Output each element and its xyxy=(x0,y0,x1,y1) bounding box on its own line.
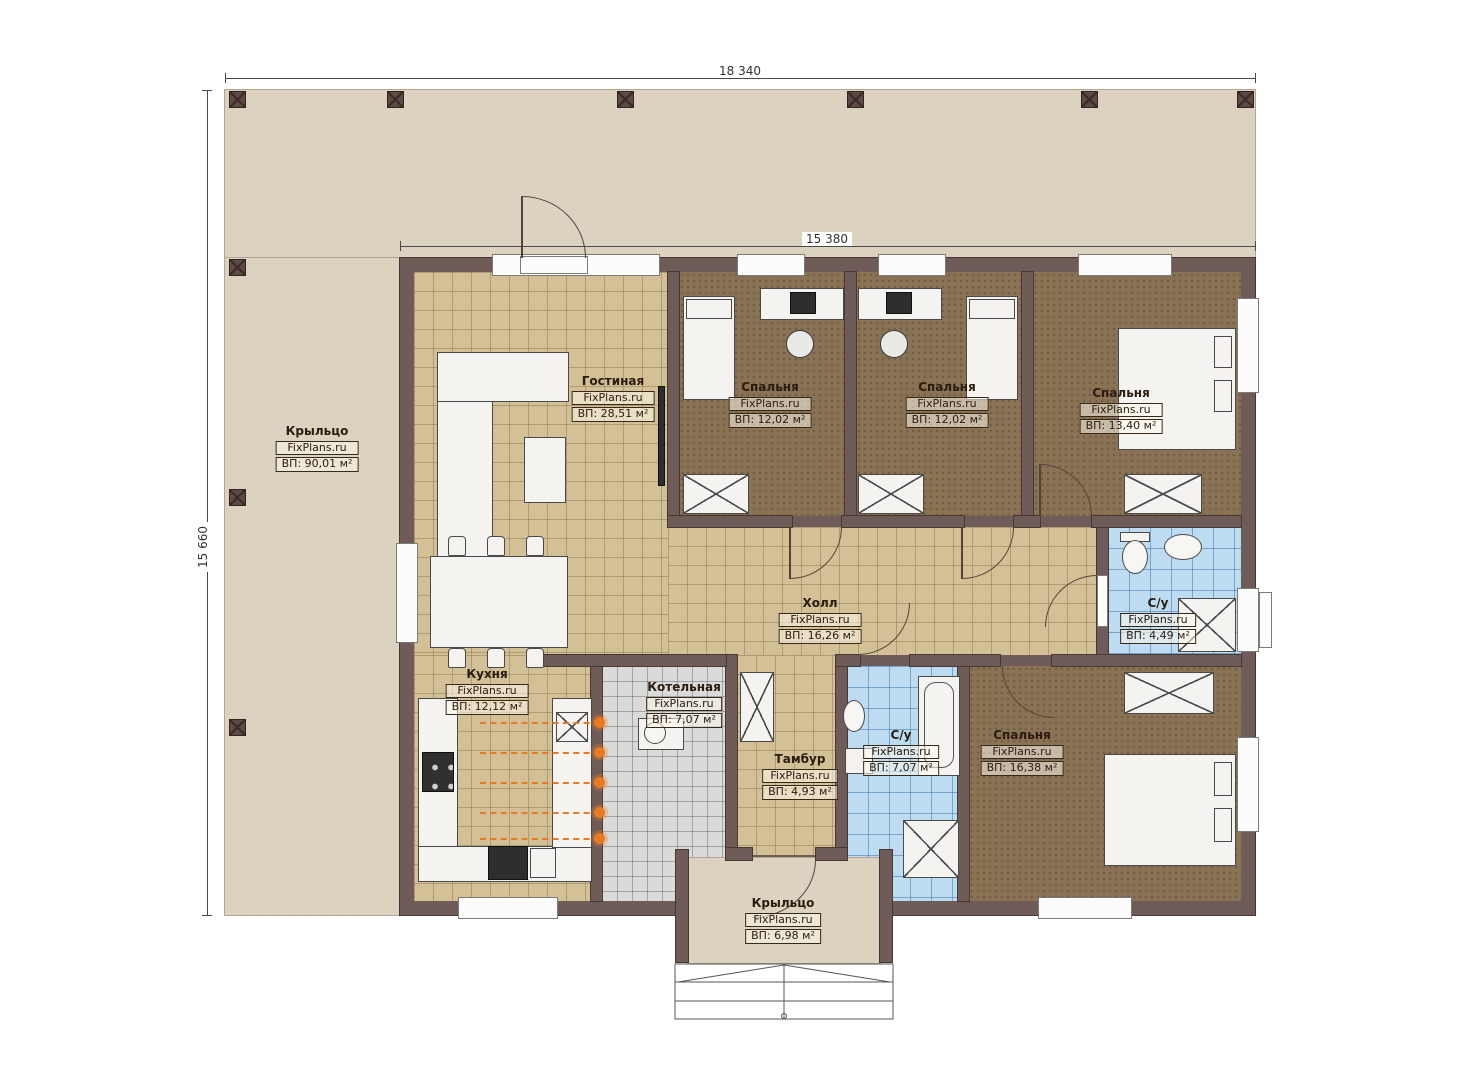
heating-pipe xyxy=(480,812,600,814)
dimension-tick xyxy=(202,915,212,916)
office-chair xyxy=(786,330,814,358)
room-watermark: FixPlans.ru xyxy=(729,397,812,412)
room-watermark: FixPlans.ru xyxy=(276,441,359,456)
porch-column xyxy=(230,92,245,107)
dimension-tick xyxy=(1255,73,1256,83)
room-watermark: FixPlans.ru xyxy=(863,745,939,760)
room-name: Тамбур xyxy=(762,753,838,767)
door-bathroom-top-opening xyxy=(1097,575,1108,627)
room-name: Спальня xyxy=(1080,387,1163,401)
tv xyxy=(658,386,665,486)
heating-pipe xyxy=(480,752,600,754)
room-area: ВП: 28,51 м² xyxy=(572,407,655,422)
porch-column xyxy=(1238,92,1253,107)
door-leaf xyxy=(521,196,523,258)
room-area: ВП: 4,93 м² xyxy=(762,785,838,800)
interior-wall xyxy=(540,655,726,666)
interior-wall xyxy=(1022,272,1033,516)
interior-wall xyxy=(1014,516,1040,527)
room-label-kitchen: Кухня FixPlans.ru ВП: 12,12 м² xyxy=(446,668,529,715)
room-area: ВП: 4,49 м² xyxy=(1120,629,1196,644)
room-watermark: FixPlans.ru xyxy=(906,397,989,412)
room-name: Спальня xyxy=(906,381,989,395)
interior-wall xyxy=(668,272,679,516)
pillow xyxy=(969,299,1015,319)
room-area: ВП: 7,07 м² xyxy=(646,713,722,728)
wardrobe xyxy=(858,474,924,514)
interior-wall xyxy=(842,516,964,527)
dimension-tick xyxy=(400,241,401,251)
door-leaf xyxy=(1039,464,1041,516)
dishwasher xyxy=(530,848,556,878)
wardrobe xyxy=(1124,474,1202,514)
vestibule-south-wall xyxy=(726,848,752,860)
window-bedroom-4 xyxy=(1038,897,1132,919)
sink xyxy=(843,700,865,732)
room-label-bedroom-4: Спальня FixPlans.ru ВП: 16,38 м² xyxy=(981,729,1064,776)
room-name: Котельная xyxy=(646,681,722,695)
room-name: С/у xyxy=(1120,597,1196,611)
door-main-entrance-opening xyxy=(520,256,588,274)
toilet xyxy=(1122,540,1148,574)
room-label-living: Гостиная FixPlans.ru ВП: 28,51 м² xyxy=(572,375,655,422)
interior-wall xyxy=(1052,655,1241,666)
dining-chair xyxy=(448,536,466,556)
laptop xyxy=(886,292,912,314)
room-label-bathroom-bottom: С/у FixPlans.ru ВП: 7,07 м² xyxy=(863,729,939,776)
room-area: ВП: 13,40 м² xyxy=(1080,419,1163,434)
dining-chair xyxy=(526,536,544,556)
pillow xyxy=(686,299,732,319)
wardrobe xyxy=(683,474,749,514)
room-watermark: FixPlans.ru xyxy=(981,745,1064,760)
dimension-line-top xyxy=(225,78,1255,79)
room-name: Крыльцо xyxy=(276,425,359,439)
heating-valve xyxy=(594,833,605,844)
dining-chair xyxy=(487,536,505,556)
dimension-overall-width: 18 340 xyxy=(715,64,765,78)
room-name: Холл xyxy=(779,597,862,611)
room-name: Крыльцо xyxy=(745,897,821,911)
porch-terrace-left xyxy=(225,258,400,915)
kitchen-sink xyxy=(556,712,588,742)
interior-wall xyxy=(668,516,792,527)
porch-terrace-top xyxy=(225,90,1255,258)
heating-valve xyxy=(594,717,605,728)
porch-side-wall xyxy=(880,850,892,962)
window-bedroom-2 xyxy=(878,254,946,276)
interior-wall xyxy=(910,655,1000,666)
window-bedroom-3-side xyxy=(1237,298,1259,393)
room-name: Кухня xyxy=(446,668,529,682)
pillow xyxy=(1214,808,1232,842)
room-name: Спальня xyxy=(981,729,1064,743)
porch-column xyxy=(848,92,863,107)
interior-wall xyxy=(836,655,860,666)
heating-pipe xyxy=(480,722,600,724)
room-area: ВП: 12,02 м² xyxy=(729,413,812,428)
room-name: Гостиная xyxy=(572,375,655,389)
vestibule-south-wall xyxy=(816,848,847,860)
room-watermark: FixPlans.ru xyxy=(646,697,722,712)
door-leaf xyxy=(961,527,963,579)
room-label-boiler-room: Котельная FixPlans.ru ВП: 7,07 м² xyxy=(646,681,722,728)
dimension-line-left xyxy=(207,90,208,915)
room-area: ВП: 7,07 м² xyxy=(863,761,939,776)
sofa xyxy=(437,352,569,402)
room-label-porch-left: Крыльцо FixPlans.ru ВП: 90,01 м² xyxy=(276,425,359,472)
room-area: ВП: 6,98 м² xyxy=(745,929,821,944)
room-label-bathroom-top: С/у FixPlans.ru ВП: 4,49 м² xyxy=(1120,597,1196,644)
porch-steps xyxy=(674,963,894,1020)
door-bathroom-side-exit xyxy=(1237,588,1259,652)
closet xyxy=(740,672,774,742)
room-area: ВП: 90,01 м² xyxy=(276,457,359,472)
porch-column xyxy=(1082,92,1097,107)
wardrobe xyxy=(1124,672,1214,714)
office-chair xyxy=(880,330,908,358)
room-watermark: FixPlans.ru xyxy=(1080,403,1163,418)
window-bedroom-3 xyxy=(1078,254,1172,276)
porch-column xyxy=(618,92,633,107)
heating-valve xyxy=(594,777,605,788)
room-watermark: FixPlans.ru xyxy=(762,769,838,784)
interior-wall xyxy=(1092,516,1241,527)
dining-chair xyxy=(487,648,505,668)
coffee-table xyxy=(524,437,566,503)
room-name: Спальня xyxy=(729,381,812,395)
room-area: ВП: 16,38 м² xyxy=(981,761,1064,776)
window-kitchen xyxy=(458,897,558,919)
porch-column xyxy=(230,260,245,275)
room-label-porch-bottom: Крыльцо FixPlans.ru ВП: 6,98 м² xyxy=(745,897,821,944)
room-label-vestibule: Тамбур FixPlans.ru ВП: 4,93 м² xyxy=(762,753,838,800)
room-area: ВП: 12,02 м² xyxy=(906,413,989,428)
dimension-tick xyxy=(225,73,226,83)
pillow xyxy=(1214,762,1232,796)
dimension-tick xyxy=(1255,241,1256,251)
heating-valve xyxy=(594,747,605,758)
shower xyxy=(903,820,959,878)
room-watermark: FixPlans.ru xyxy=(779,613,862,628)
stove xyxy=(422,752,454,792)
pillow xyxy=(1214,380,1232,412)
dining-table xyxy=(430,556,568,648)
room-area: ВП: 12,12 м² xyxy=(446,700,529,715)
heating-pipe xyxy=(480,782,600,784)
pillow xyxy=(1214,336,1232,368)
room-watermark: FixPlans.ru xyxy=(446,684,529,699)
sink xyxy=(1164,534,1202,560)
room-name: С/у xyxy=(863,729,939,743)
dimension-tick xyxy=(202,90,212,91)
interior-wall xyxy=(845,272,856,516)
laptop xyxy=(790,292,816,314)
porch-column xyxy=(230,720,245,735)
room-area: ВП: 16,26 м² xyxy=(779,629,862,644)
room-label-bedroom-1: Спальня FixPlans.ru ВП: 12,02 м² xyxy=(729,381,812,428)
porch-column xyxy=(230,490,245,505)
door-side-stoop xyxy=(1259,592,1272,648)
room-label-bedroom-3: Спальня FixPlans.ru ВП: 13,40 м² xyxy=(1080,387,1163,434)
window-bedroom-1 xyxy=(737,254,805,276)
dining-chair xyxy=(526,648,544,668)
room-watermark: FixPlans.ru xyxy=(745,913,821,928)
dimension-overall-height: 15 660 xyxy=(196,522,210,572)
porch-column xyxy=(388,92,403,107)
dimension-house-width: 15 380 xyxy=(802,232,852,246)
fridge xyxy=(488,846,528,880)
room-watermark: FixPlans.ru xyxy=(1120,613,1196,628)
door-leaf xyxy=(789,527,791,579)
room-label-bedroom-2: Спальня FixPlans.ru ВП: 12,02 м² xyxy=(906,381,989,428)
porch-side-wall xyxy=(676,850,688,962)
window-dining xyxy=(396,543,418,643)
room-label-hall: Холл FixPlans.ru ВП: 16,26 м² xyxy=(779,597,862,644)
floor-plan: 18 340 15 380 15 660 xyxy=(0,0,1473,1080)
heating-valve xyxy=(594,807,605,818)
room-watermark: FixPlans.ru xyxy=(572,391,655,406)
heating-pipe xyxy=(480,838,600,840)
dining-chair xyxy=(448,648,466,668)
window-bedroom-4-side xyxy=(1237,737,1259,832)
